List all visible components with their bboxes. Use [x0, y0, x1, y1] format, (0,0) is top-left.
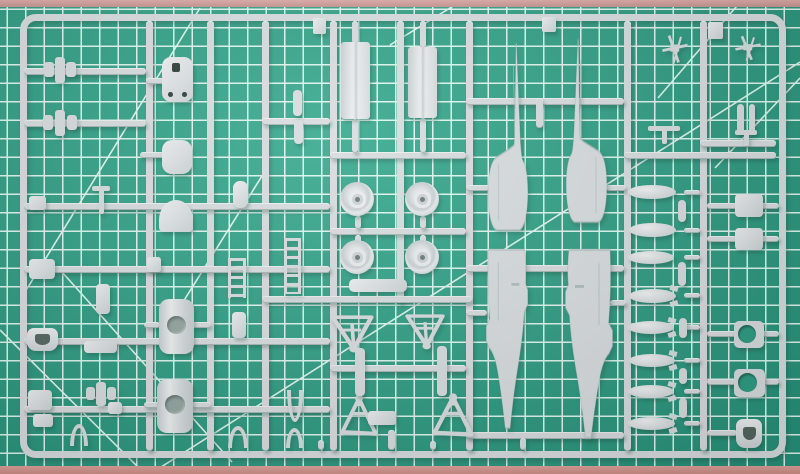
sprue-runner: [707, 379, 736, 385]
sprue-runner: [624, 21, 631, 451]
pylon-2: [678, 262, 686, 286]
frame-tab-3: [708, 22, 723, 39]
round-hole: [182, 92, 187, 97]
small-winged-part-1: [44, 57, 76, 83]
part-body: [55, 57, 65, 83]
main-wheel-2: [405, 182, 439, 216]
sprue-runner: [388, 430, 395, 450]
oval-opening: [167, 316, 187, 335]
sprue-runner: [466, 21, 473, 451]
flat-strip: [84, 341, 117, 353]
t-bar: [735, 130, 757, 135]
ring-opening: [738, 373, 757, 392]
ring-opening: [738, 325, 757, 343]
drop-tank-3: [628, 251, 674, 264]
sprue-runner: [140, 152, 164, 158]
wheel-hub: [355, 197, 360, 202]
main-wheel-1: [340, 182, 374, 216]
sprue-runner: [707, 430, 737, 436]
part-body: [55, 110, 66, 136]
sprue-runner: [318, 440, 324, 450]
sprue-runner: [420, 21, 426, 48]
sprue-runner: [684, 389, 700, 394]
bomb-fin: [668, 350, 677, 357]
boarding-ladder-1: [228, 258, 246, 298]
main-wheel-3: [340, 240, 374, 274]
equipment-box-1: [735, 194, 763, 217]
sprue-runner: [707, 203, 737, 209]
part-fin: [44, 62, 54, 77]
spoon-shaped-part: [233, 181, 248, 208]
sprue-runner: [707, 331, 736, 337]
link-rod-2: [437, 346, 447, 396]
pylon-5: [679, 398, 687, 418]
sprue-runner: [191, 402, 211, 408]
oval-opening: [165, 395, 185, 413]
sprue-runner: [684, 255, 700, 260]
small-cluster-3: [108, 402, 122, 414]
part-fin: [66, 62, 76, 77]
sprue-runner: [355, 216, 361, 229]
gear-door-panel-2: [408, 47, 437, 118]
sprue-runner: [352, 119, 358, 153]
link-rod-1: [355, 348, 365, 396]
t-bar: [648, 126, 680, 131]
sprue-runner: [430, 441, 436, 450]
wheel-hub: [420, 255, 425, 260]
sprue-runner: [420, 216, 426, 229]
pitot-t-part-1: [648, 126, 680, 144]
sprue-runner: [420, 118, 426, 153]
landing-gear-leg-1: [660, 33, 690, 65]
equipment-box-2: [735, 228, 763, 250]
seat-recess: [35, 334, 51, 345]
fuselage-rear-right: [564, 248, 614, 440]
sprue-runner: [761, 236, 779, 242]
antenna-mast: [92, 186, 110, 214]
bomb-fin: [667, 317, 676, 324]
drop-tank-2: [629, 223, 676, 237]
flat-fairing: [349, 279, 407, 292]
seat-recess: [743, 427, 756, 440]
sprue-runner: [144, 322, 160, 328]
small-cluster-2: [33, 414, 53, 427]
small-bracket-1: [29, 196, 46, 210]
gear-frame-2: [404, 314, 446, 348]
bomb-fin: [667, 381, 676, 388]
ejection-seat: [736, 419, 762, 448]
sprue-runner: [207, 21, 214, 451]
gear-frame-4: [432, 395, 474, 439]
small-pylon-part: [232, 312, 246, 338]
pylon-4: [679, 368, 687, 384]
small-part-strip: [96, 284, 110, 314]
bomb-fin: [668, 413, 678, 420]
square-hole: [172, 63, 180, 72]
sprue-runner: [762, 331, 779, 337]
vertical-rod-1: [293, 90, 302, 116]
fuselage-front-right: [565, 38, 608, 224]
boarding-ladder-2: [284, 238, 301, 294]
frame-tab-2: [542, 17, 556, 32]
intake-cover-1: [159, 299, 194, 354]
gear-frame-1: [329, 315, 375, 351]
frame-tab-1: [313, 18, 326, 34]
main-wheel-4: [405, 240, 439, 274]
small-bracket-3: [147, 257, 161, 272]
sprue-runner: [684, 293, 700, 298]
sprue-runner: [397, 21, 404, 303]
pylon-1: [678, 200, 686, 222]
sprue-runner: [624, 152, 776, 159]
small-bracket-2: [29, 259, 55, 279]
sprue-runner: [262, 296, 472, 303]
bomb-3: [629, 354, 675, 367]
intake-ring-1: [734, 321, 764, 348]
t-bar: [92, 186, 110, 191]
center-fairing: [368, 411, 396, 425]
sprue-runner: [536, 98, 543, 128]
intake-cover-2: [157, 379, 193, 433]
pilot-seat: [27, 328, 58, 351]
sprue-runner: [707, 236, 737, 242]
bomb-2: [628, 321, 674, 334]
pitot-t-part-2: [735, 130, 757, 146]
sprue-runner: [24, 68, 146, 75]
sprue-runner: [684, 228, 700, 233]
bomb-fin: [669, 285, 679, 292]
rounded-hatch: [162, 140, 192, 174]
sprue-runner: [606, 185, 626, 191]
small-cluster-1: [28, 390, 52, 410]
fuselage-rear-left: [485, 248, 529, 430]
part-fin: [107, 387, 116, 400]
drop-tank-1: [628, 185, 676, 199]
sprue-runner: [146, 21, 153, 451]
sprue-runner: [352, 21, 358, 44]
small-winged-part-2: [43, 110, 77, 136]
bomb-4: [628, 385, 674, 398]
sprue-runner: [684, 190, 700, 195]
fuselage-front-left: [487, 42, 529, 232]
part-body: [96, 382, 106, 406]
sprue-runner: [262, 21, 269, 451]
wheel-hub: [420, 197, 425, 202]
photo-model-kit-sprue-on-cutting-mat: [0, 0, 800, 474]
bomb-5: [628, 417, 675, 430]
sprue-runner: [761, 203, 779, 209]
round-hole: [168, 92, 173, 97]
sprue-runner: [684, 421, 700, 426]
sprue-runner: [330, 21, 337, 451]
landing-gear-leg-2: [733, 34, 763, 62]
sprue-runner: [684, 358, 700, 363]
sprue-runner: [330, 228, 466, 235]
vertical-rod-2: [294, 120, 303, 144]
access-panel-with-holes: [162, 57, 193, 102]
sprue-runner: [700, 21, 707, 451]
sprue-runner: [330, 152, 466, 159]
intake-ring-2: [734, 369, 765, 397]
gear-door-panel-1: [341, 42, 370, 119]
sprue-runner: [520, 438, 526, 450]
wheel-hub: [355, 255, 360, 260]
dome-part: [159, 200, 193, 232]
sprue-runner: [466, 310, 487, 316]
part-fin: [86, 387, 95, 400]
sprue-runner: [191, 322, 211, 328]
bomb-1: [629, 289, 676, 303]
sprue: [0, 0, 800, 474]
part-fin: [67, 115, 77, 130]
part-fin: [43, 115, 53, 130]
pylon-3: [679, 318, 687, 338]
